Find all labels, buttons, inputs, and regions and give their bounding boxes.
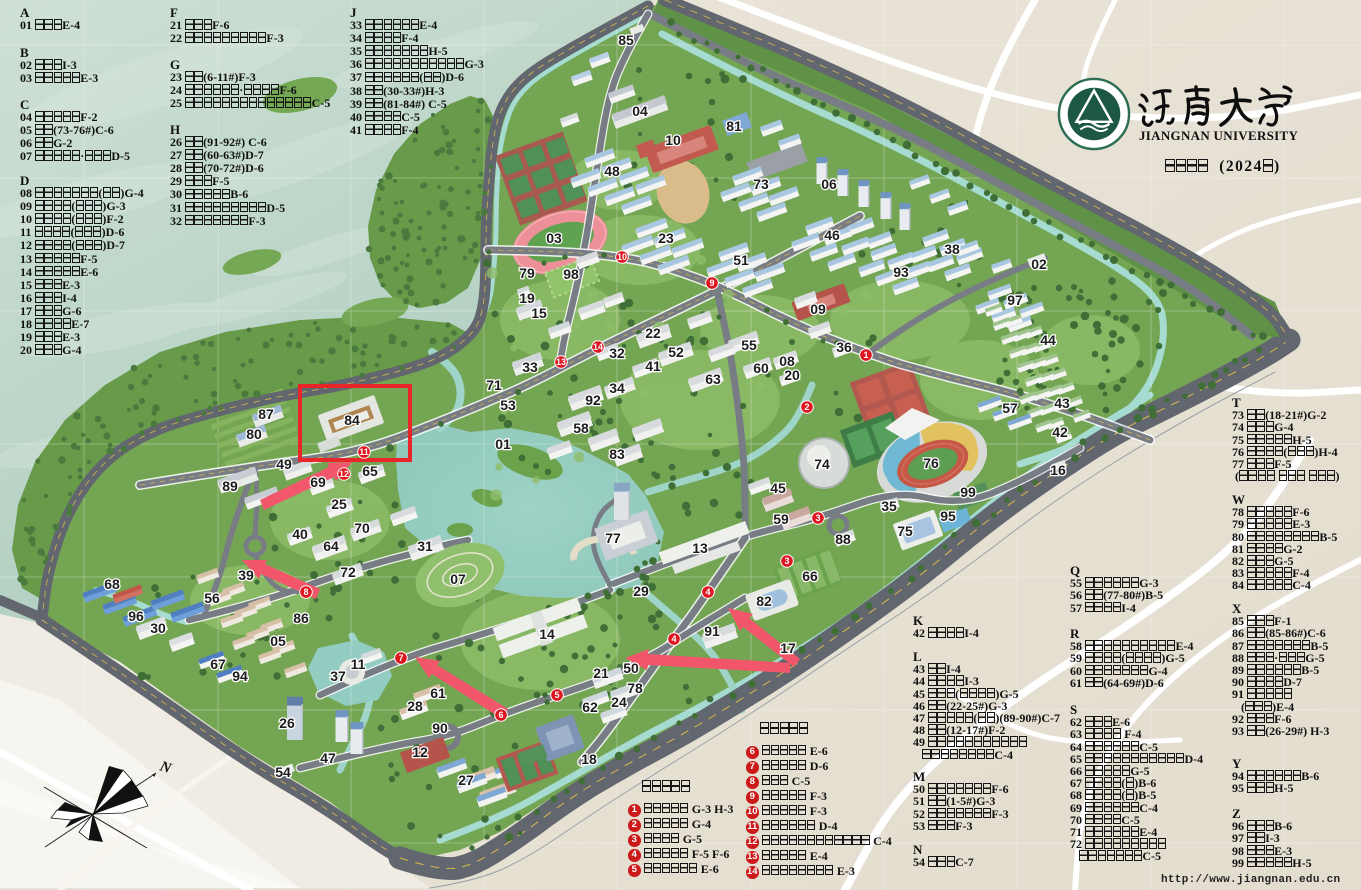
svg-text:88: 88 — [835, 531, 851, 547]
svg-text:42: 42 — [1052, 424, 1068, 440]
svg-text:32: 32 — [609, 345, 625, 361]
svg-text:95: 95 — [940, 508, 956, 524]
svg-text:59: 59 — [773, 511, 789, 527]
svg-text:74: 74 — [814, 456, 830, 472]
svg-text:50: 50 — [623, 660, 639, 676]
svg-text:89: 89 — [222, 478, 238, 494]
svg-text:83: 83 — [609, 446, 625, 462]
svg-text:62: 62 — [582, 699, 598, 715]
svg-text:46: 46 — [824, 227, 840, 243]
svg-text:22: 22 — [645, 325, 661, 341]
svg-text:20: 20 — [784, 367, 800, 383]
svg-text:85: 85 — [618, 32, 634, 48]
svg-text:4: 4 — [671, 634, 676, 644]
svg-text:3: 3 — [815, 513, 820, 523]
svg-text:91: 91 — [704, 623, 720, 639]
svg-text:45: 45 — [770, 480, 786, 496]
svg-text:8: 8 — [303, 587, 308, 597]
svg-text:53: 53 — [500, 397, 516, 413]
svg-text:76: 76 — [923, 455, 939, 471]
svg-text:27: 27 — [458, 772, 474, 788]
svg-text:29: 29 — [633, 583, 649, 599]
svg-text:33: 33 — [522, 359, 538, 375]
svg-text:26: 26 — [279, 715, 295, 731]
svg-text:01: 01 — [495, 436, 511, 452]
svg-text:12: 12 — [339, 469, 349, 479]
svg-text:49: 49 — [276, 456, 292, 472]
svg-text:35: 35 — [881, 498, 897, 514]
svg-text:21: 21 — [593, 665, 609, 681]
svg-text:55: 55 — [741, 337, 757, 353]
svg-text:37: 37 — [330, 668, 346, 684]
svg-text:7: 7 — [398, 653, 403, 663]
svg-text:1: 1 — [863, 350, 868, 360]
svg-text:6: 6 — [498, 710, 503, 720]
svg-text:92: 92 — [585, 392, 601, 408]
svg-text:25: 25 — [331, 496, 347, 512]
svg-text:44: 44 — [1040, 332, 1056, 348]
svg-text:23: 23 — [658, 230, 674, 246]
svg-text:43: 43 — [1054, 395, 1070, 411]
svg-text:18: 18 — [581, 751, 597, 767]
svg-text:09: 09 — [810, 301, 826, 317]
svg-text:30: 30 — [150, 620, 166, 636]
svg-text:99: 99 — [960, 484, 976, 500]
svg-text:3: 3 — [784, 556, 789, 566]
svg-text:04: 04 — [632, 103, 648, 119]
svg-text:13: 13 — [556, 357, 566, 367]
svg-text:79: 79 — [519, 265, 535, 281]
svg-text:24: 24 — [611, 694, 627, 710]
svg-text:28: 28 — [407, 698, 423, 714]
svg-text:68: 68 — [104, 576, 120, 592]
svg-text:77: 77 — [605, 530, 621, 546]
svg-text:82: 82 — [756, 593, 772, 609]
svg-text:12: 12 — [412, 744, 428, 760]
svg-text:87: 87 — [258, 406, 274, 422]
svg-text:54: 54 — [275, 764, 291, 780]
svg-text:51: 51 — [733, 252, 749, 268]
svg-text:38: 38 — [944, 241, 960, 257]
svg-text:4: 4 — [705, 587, 710, 597]
svg-text:14: 14 — [593, 342, 603, 352]
svg-text:17: 17 — [780, 640, 796, 656]
svg-text:72: 72 — [340, 564, 356, 580]
svg-text:10: 10 — [617, 252, 627, 262]
svg-text:80: 80 — [246, 426, 262, 442]
svg-text:75: 75 — [897, 523, 913, 539]
svg-text:36: 36 — [836, 339, 852, 355]
svg-text:11: 11 — [351, 656, 366, 672]
svg-text:02: 02 — [1031, 256, 1047, 272]
svg-text:48: 48 — [604, 163, 620, 179]
svg-text:86: 86 — [293, 610, 309, 626]
svg-text:16: 16 — [1050, 462, 1066, 478]
svg-text:41: 41 — [645, 358, 661, 374]
svg-text:10: 10 — [665, 132, 681, 148]
svg-text:64: 64 — [323, 538, 339, 554]
svg-text:31: 31 — [417, 538, 433, 554]
svg-text:19: 19 — [519, 290, 535, 306]
svg-text:78: 78 — [627, 680, 643, 696]
svg-text:70: 70 — [354, 520, 370, 536]
svg-text:56: 56 — [204, 590, 220, 606]
svg-text:57: 57 — [1002, 400, 1018, 416]
svg-text:67: 67 — [210, 656, 226, 672]
svg-text:07: 07 — [450, 571, 466, 587]
svg-text:03: 03 — [546, 230, 562, 246]
svg-text:39: 39 — [238, 567, 254, 583]
svg-text:47: 47 — [320, 750, 336, 766]
svg-text:9: 9 — [709, 278, 714, 288]
svg-text:N: N — [157, 758, 174, 777]
svg-text:52: 52 — [668, 344, 684, 360]
svg-text:90: 90 — [432, 720, 448, 736]
svg-text:34: 34 — [609, 380, 625, 396]
svg-text:5: 5 — [554, 690, 559, 700]
svg-text:63: 63 — [705, 371, 721, 387]
svg-text:40: 40 — [292, 526, 308, 542]
svg-text:73: 73 — [753, 176, 769, 192]
svg-text:13: 13 — [692, 540, 708, 556]
svg-text:66: 66 — [802, 568, 818, 584]
svg-text:71: 71 — [486, 377, 502, 393]
svg-text:94: 94 — [232, 668, 248, 684]
svg-text:96: 96 — [128, 608, 144, 624]
svg-text:14: 14 — [539, 626, 555, 642]
svg-text:2: 2 — [804, 402, 809, 412]
svg-text:58: 58 — [573, 420, 589, 436]
svg-text:93: 93 — [893, 264, 909, 280]
svg-text:11: 11 — [359, 447, 369, 457]
svg-text:69: 69 — [310, 474, 326, 490]
svg-text:06: 06 — [821, 176, 837, 192]
svg-text:98: 98 — [563, 266, 579, 282]
svg-text:65: 65 — [362, 463, 378, 479]
svg-text:05: 05 — [270, 633, 286, 649]
svg-text:61: 61 — [430, 685, 446, 701]
svg-text:84: 84 — [344, 412, 360, 428]
svg-text:15: 15 — [531, 305, 547, 321]
svg-text:81: 81 — [726, 118, 742, 134]
svg-text:97: 97 — [1007, 292, 1023, 308]
svg-text:60: 60 — [753, 360, 769, 376]
